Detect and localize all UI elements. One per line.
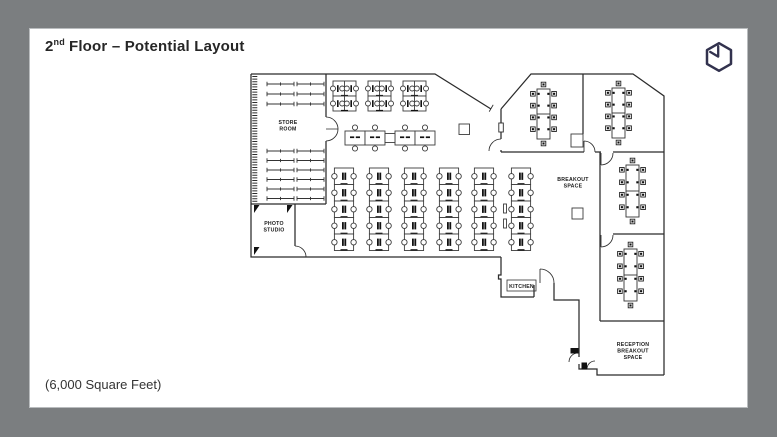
conference-tables [531, 81, 646, 308]
chair [531, 127, 536, 132]
desk-pair [367, 218, 392, 235]
door-photo-studio [295, 246, 306, 257]
desk-pair [367, 234, 392, 251]
chair [641, 168, 646, 173]
door-room3 [601, 235, 613, 247]
chair [552, 127, 557, 132]
door-store-room [326, 117, 338, 141]
title-ordinal: nd [54, 37, 65, 47]
desk-pair [509, 185, 534, 202]
chair [616, 81, 621, 86]
desk-cluster [366, 81, 394, 96]
chair [618, 252, 623, 257]
floor-plan: STORE ROOM PHOTO STUDIO BREAKOUT SPACE K… [238, 61, 668, 391]
desk-cluster [401, 96, 429, 111]
chair [541, 82, 546, 87]
conference-table [620, 158, 646, 224]
chair [630, 219, 635, 224]
desk-pair [332, 234, 357, 251]
desk-pair [472, 234, 497, 251]
column-square [572, 208, 583, 219]
chair [552, 115, 557, 120]
desk-pair [509, 234, 534, 251]
desk-pair [437, 168, 462, 185]
desk-pair [437, 234, 462, 251]
chair [641, 180, 646, 185]
reception-label: BREAKOUT [617, 349, 649, 355]
door-reception-leaf-1 [571, 348, 579, 354]
chair [639, 276, 644, 281]
desk-pair [437, 185, 462, 202]
desk-pair [332, 201, 357, 218]
door-meeting-left [584, 141, 595, 152]
desk-pair [367, 201, 392, 218]
kitchen-label: KITCHEN [509, 284, 534, 290]
wall-store-room [251, 74, 326, 246]
wall-niche [499, 123, 504, 132]
screenshot-root: { "slide": { "title": { "number": "2", "… [0, 0, 777, 437]
door-reception-leaf-2 [582, 363, 588, 370]
desk-pair [509, 168, 534, 185]
chair [616, 140, 621, 145]
locker [504, 204, 507, 213]
chair [531, 103, 536, 108]
shelving-rack [267, 82, 324, 201]
chair [606, 114, 611, 119]
desk-pair [509, 201, 534, 218]
reception-label: RECEPTION [617, 342, 650, 348]
chair [620, 205, 625, 210]
bench-desks [345, 125, 435, 151]
desk-cluster [401, 81, 429, 96]
top-desk-clusters [331, 81, 429, 111]
chair [606, 126, 611, 131]
chair [641, 192, 646, 197]
desk-pair [402, 234, 427, 251]
conference-table [606, 81, 632, 145]
desk-pair [472, 185, 497, 202]
chair [606, 91, 611, 96]
desk-pair [472, 168, 497, 185]
door-main-area [489, 139, 501, 151]
desk-pair [437, 201, 462, 218]
shelving-racks [267, 82, 324, 201]
conference-table [531, 82, 557, 146]
hexagon-cube-logo-icon [704, 41, 734, 73]
chair [639, 252, 644, 257]
photo-studio-label: STUDIO [263, 228, 284, 234]
desk-pair [402, 185, 427, 202]
store-room-label: ROOM [279, 127, 296, 133]
desk-pair [332, 185, 357, 202]
chair [620, 168, 625, 173]
chair [627, 102, 632, 107]
chair [627, 114, 632, 119]
cabinet [571, 134, 583, 147]
title-number: 2 [45, 38, 54, 55]
door-kitchen [540, 269, 554, 283]
page-title: 2ndFloor – Potential Layout [45, 37, 245, 55]
chair [618, 289, 623, 294]
desk-pair [402, 201, 427, 218]
door-flag-3 [254, 247, 260, 255]
chair [627, 91, 632, 96]
chair [628, 242, 633, 247]
desk-pair [472, 201, 497, 218]
photo-studio-label: PHOTO [264, 221, 284, 227]
wall-reception [554, 283, 664, 375]
chair [618, 264, 623, 269]
desk-pair [402, 168, 427, 185]
chair [531, 115, 536, 120]
desk-pair [332, 168, 357, 185]
desk-pair [367, 185, 392, 202]
reception-label: SPACE [624, 355, 643, 361]
chair [552, 92, 557, 97]
desk-cluster [331, 81, 359, 96]
store-room-label: STORE [278, 120, 297, 126]
breakout-label: SPACE [564, 184, 583, 190]
desk-pair [437, 218, 462, 235]
chair [620, 180, 625, 185]
chair [620, 192, 625, 197]
chair [627, 126, 632, 131]
chair [641, 205, 646, 210]
desk-pair [509, 218, 534, 235]
desk-pair [332, 218, 357, 235]
desk-pair [367, 168, 392, 185]
door-room2 [601, 153, 613, 165]
chair [618, 276, 623, 281]
chair [541, 141, 546, 146]
square-feet-note: (6,000 Square Feet) [45, 377, 161, 392]
title-text: Floor – Potential Layout [69, 38, 245, 55]
chair [606, 102, 611, 107]
chair [639, 264, 644, 269]
door-flag-1 [254, 205, 260, 213]
chair [628, 303, 633, 308]
slide: 2ndFloor – Potential Layout [29, 28, 748, 408]
desk-pair [402, 218, 427, 235]
desk-pair [472, 218, 497, 235]
chair [639, 289, 644, 294]
doors [254, 117, 613, 370]
breakout-label: BREAKOUT [557, 177, 589, 183]
column-square [459, 124, 470, 135]
chair [630, 158, 635, 163]
chair [531, 92, 536, 97]
locker [504, 219, 507, 228]
desk-cluster [331, 96, 359, 111]
door-flag-2 [287, 205, 293, 213]
desk-cluster [366, 96, 394, 111]
chair [552, 103, 557, 108]
conference-table [618, 242, 644, 308]
